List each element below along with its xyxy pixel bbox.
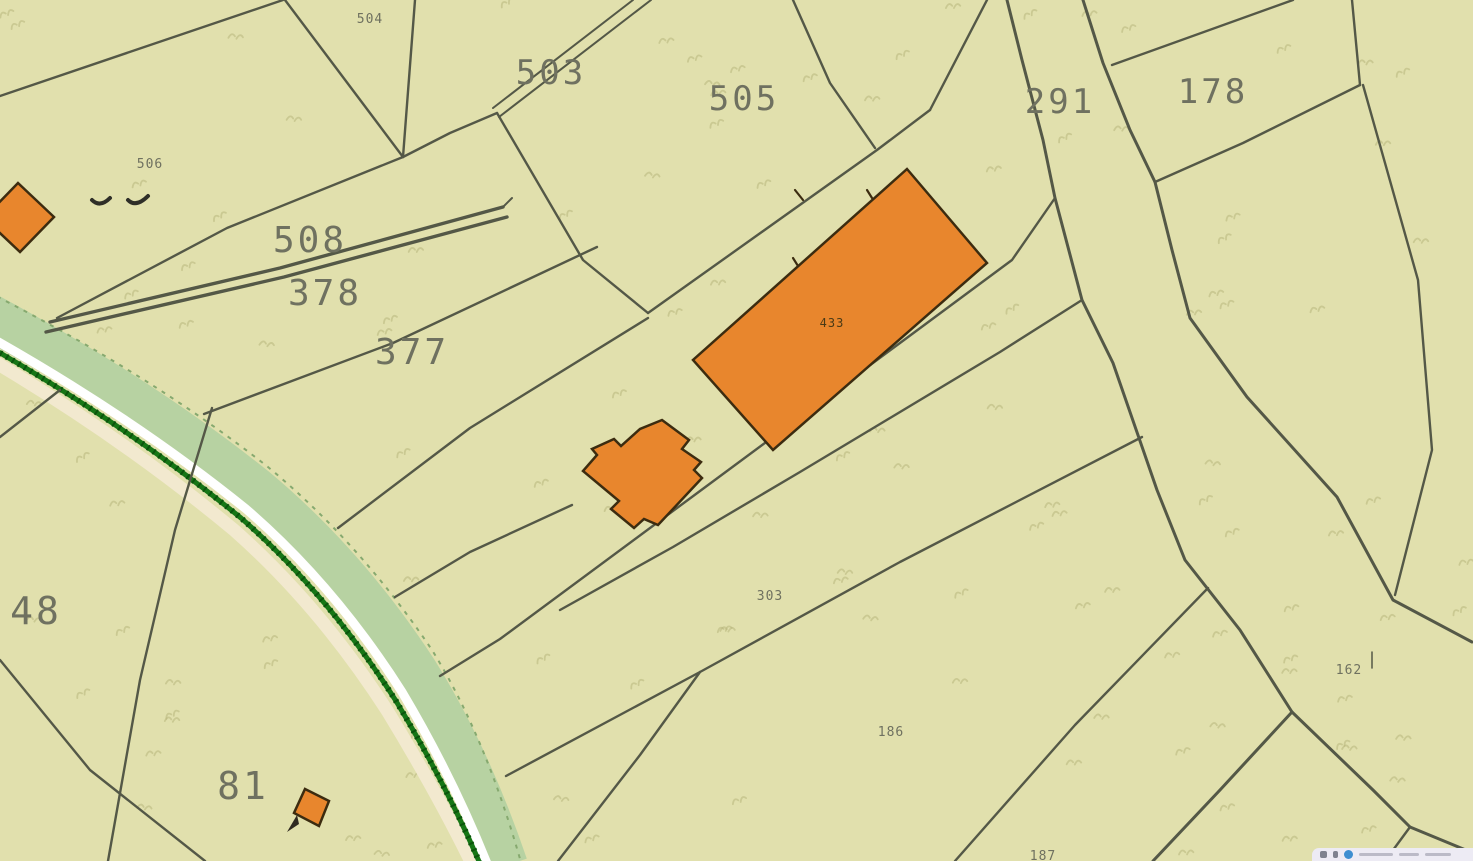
parcel-label-291: 291 [1025, 82, 1095, 122]
parcel-label-378: 378 [288, 273, 362, 314]
parcel-label-503: 503 [516, 53, 586, 93]
attribution-logo-icon [1344, 850, 1353, 859]
parcel-label-303: 303 [757, 589, 783, 604]
attribution-glyph-icon [1320, 851, 1327, 858]
parcel-label-81: 81 [217, 764, 269, 808]
parcel-label-504: 504 [357, 12, 383, 27]
attribution-text-fragment [1425, 853, 1451, 856]
parcel-label-186: 186 [878, 725, 904, 740]
parcel-label-506: 506 [137, 157, 163, 172]
parcel-label-508: 508 [273, 220, 347, 261]
parcel-label-187: 187 [1030, 849, 1056, 861]
attribution-text-fragment [1399, 853, 1419, 856]
parcel-label-48: 48 [10, 589, 62, 633]
attribution-text-fragment [1359, 853, 1393, 856]
parcel-label-162: 162 [1336, 663, 1362, 678]
attribution-bar[interactable] [1312, 848, 1473, 861]
parcel-label-433: 433 [820, 316, 845, 330]
cadastral-map-viewport[interactable]: 5035055083783772911784881504506303186162… [0, 0, 1473, 861]
parcel-label-505: 505 [709, 79, 779, 119]
parcel-label-178: 178 [1178, 72, 1248, 112]
parcel-label-377: 377 [375, 332, 449, 373]
cadastral-map-canvas[interactable]: 5035055083783772911784881504506303186162… [0, 0, 1473, 861]
attribution-glyph-icon [1333, 851, 1338, 858]
